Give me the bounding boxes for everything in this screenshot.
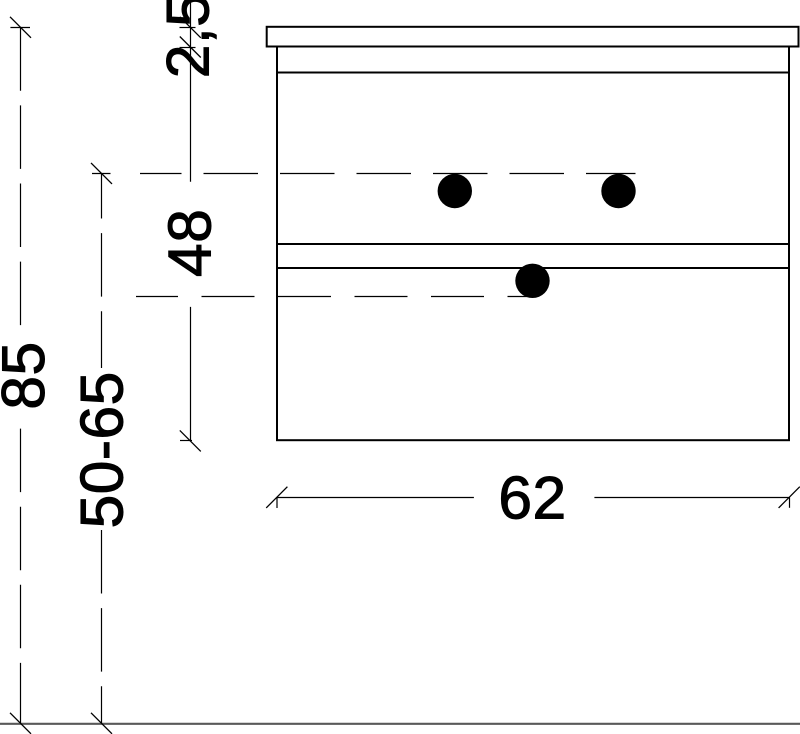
svg-text:48: 48 xyxy=(156,209,224,277)
svg-text:85: 85 xyxy=(0,341,57,409)
svg-text:2,5: 2,5 xyxy=(154,0,222,78)
svg-text:50-65: 50-65 xyxy=(68,371,136,528)
svg-text:62: 62 xyxy=(498,464,566,532)
